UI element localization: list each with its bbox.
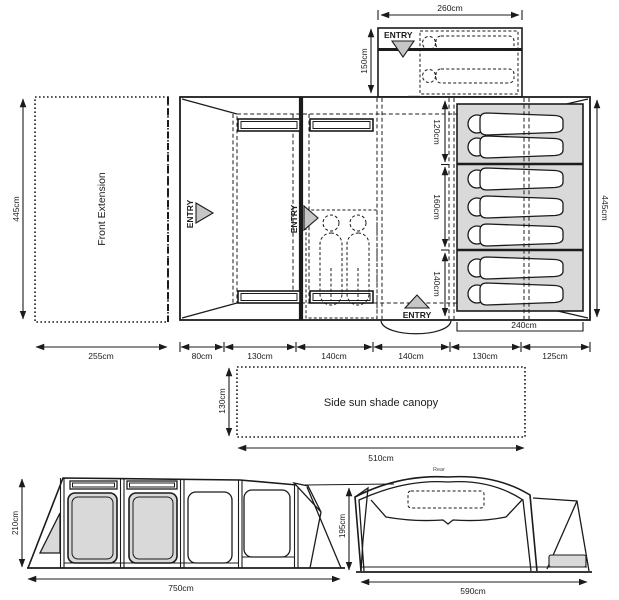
canopy-depth-dimension: 130cm: [217, 368, 229, 436]
bottom-entry-label: ENTRY: [403, 310, 432, 320]
sleeper-figure: [468, 224, 563, 246]
section3-height-label: 140cm: [432, 271, 442, 297]
sleeper-figure: [468, 113, 563, 135]
bedroom1-width-label: 130cm: [472, 351, 498, 361]
rear-vent-dashed: [408, 491, 484, 508]
sleeper-figure: [468, 136, 563, 158]
side-height-label: 210cm: [11, 511, 20, 535]
sun-canopy: Side sun shade canopy 130cm 510cm: [217, 367, 525, 463]
front-extension: Front Extension 445cm 255cm: [11, 97, 168, 361]
main-floor-plan: ENTRY ENTRY ENTRY 120cm 160cm 140cm 240c…: [180, 97, 610, 334]
plan-height-right-label: 445cm: [600, 195, 610, 221]
bedroom2-width-label: 125cm: [542, 351, 568, 361]
porch-width-label: 80cm: [192, 351, 213, 361]
plan-height-right-dimension: 445cm: [597, 100, 610, 317]
side-door-opening: [244, 490, 290, 557]
rear-door-curve: [371, 500, 522, 524]
living3-width-label: 140cm: [398, 351, 424, 361]
sleeper-figure: [468, 168, 563, 190]
front-extension-width-dimension: 255cm: [36, 347, 167, 361]
rear-elevation: Rear 195cm 590cm: [338, 467, 592, 596]
rear-wing-window: [549, 555, 586, 567]
canopy-label: Side sun shade canopy: [324, 397, 439, 409]
rear-label: Rear: [433, 467, 445, 473]
side-door-opening: [188, 492, 232, 563]
front-extension-label: Front Extension: [96, 172, 108, 246]
annex-depth-label: 150cm: [359, 48, 369, 74]
front-triangle-window: [40, 513, 60, 553]
sleeper-figure: [468, 257, 563, 279]
annex-width-label: 260cm: [437, 3, 463, 13]
sleeper-figure: [468, 283, 563, 305]
tent-specification-diagram: 260cm ENTRY 150cm: [0, 0, 619, 600]
rear-inner-seam: [359, 482, 531, 571]
annex-entry-label: ENTRY: [384, 30, 413, 40]
roof-vent: [70, 481, 117, 489]
plan-window: [238, 119, 300, 131]
roof-vent: [127, 481, 177, 489]
entry-flap: [381, 321, 451, 334]
living2-width-label: 140cm: [321, 351, 347, 361]
bedroom-area: [457, 104, 583, 311]
section2-height-label: 160cm: [432, 194, 442, 220]
annex-width-dimension: 260cm: [378, 3, 522, 20]
rear-height-label: 195cm: [338, 514, 347, 538]
rear-height-dimension: 195cm: [338, 488, 349, 570]
bedroom-width-label: 240cm: [511, 320, 537, 330]
side-window: [68, 493, 117, 563]
plan-height-left-label: 445cm: [11, 196, 21, 222]
canopy-depth-label: 130cm: [217, 388, 227, 414]
diagram-svg: 260cm ENTRY 150cm: [0, 0, 619, 600]
living1-width-label: 130cm: [247, 351, 273, 361]
plan-window: [310, 119, 373, 131]
side-width-dimension: 750cm: [28, 579, 340, 593]
canopy-width-label: 510cm: [368, 453, 394, 463]
front-extension-width-label: 255cm: [88, 351, 114, 361]
plan-height-left-dimension: 445cm: [11, 99, 23, 319]
side-elevation: 210cm 750cm: [11, 478, 394, 593]
rear-width-label: 590cm: [460, 586, 486, 596]
middle-entry-label: ENTRY: [289, 204, 299, 233]
side-height-dimension: 210cm: [11, 479, 22, 567]
plan-width-dimensions: 80cm 130cm 140cm 140cm 130cm 125cm: [180, 342, 590, 361]
section1-height-label: 120cm: [432, 119, 442, 145]
annex-depth-dimension: 150cm: [359, 29, 371, 93]
annex-floor-plan: 260cm ENTRY 150cm: [359, 3, 522, 100]
canopy-width-dimension: 510cm: [238, 448, 524, 463]
porch-entry-label: ENTRY: [185, 199, 195, 228]
side-window: [129, 493, 177, 563]
plan-window: [238, 291, 300, 303]
sleeper-figure: [468, 196, 563, 218]
bedroom-width-dimension: 240cm: [457, 320, 583, 331]
side-width-label: 750cm: [168, 583, 194, 593]
rear-width-dimension: 590cm: [361, 582, 587, 596]
